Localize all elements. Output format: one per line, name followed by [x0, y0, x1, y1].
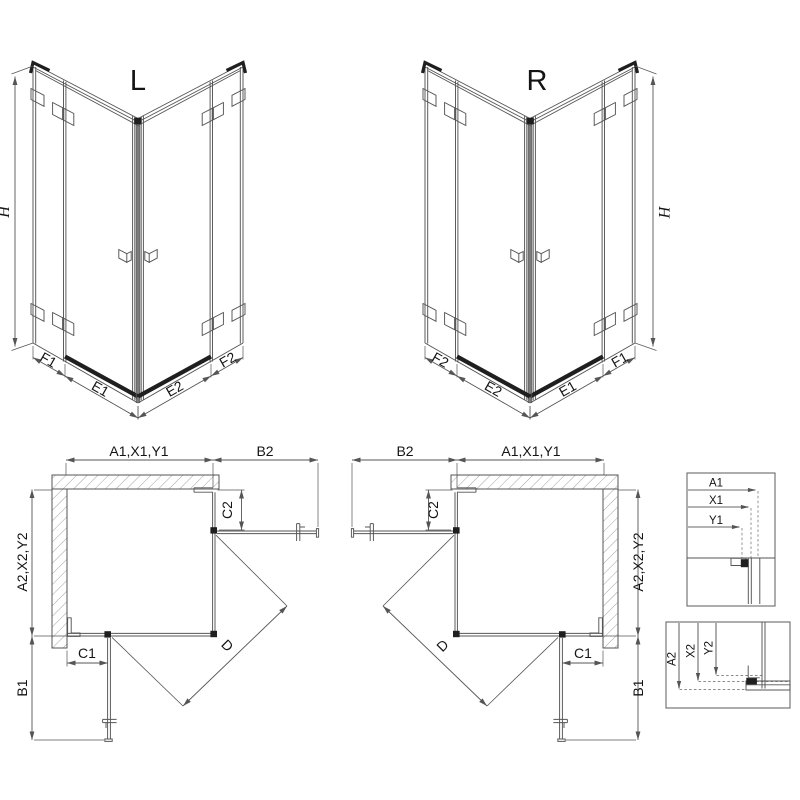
iso-view-right: R H F2 E2 E1 F1	[423, 63, 673, 420]
iso-right-dim-label-f2: F2	[429, 349, 451, 371]
iso-right-dim-label-f1: F1	[608, 349, 630, 371]
detail-height-label-x2: X2	[686, 644, 698, 658]
detail-height-measures: A2 X2 Y2	[666, 622, 790, 708]
iso-left-dim-label-f2: F2	[216, 349, 238, 371]
plan-left-dim-label-c1: C1	[78, 645, 96, 661]
detail-height-label-a2: A2	[667, 652, 679, 666]
detail-width-label-a1: A1	[709, 478, 723, 490]
plan-left-dim-label-c2: C2	[219, 501, 235, 519]
plan-view-right: B2 A1,X1,Y1 A2,X2,Y2 C2 C1 B1 D	[351, 443, 646, 741]
plan-left-dim-label-b1: B1	[14, 679, 30, 696]
plan-left-top-wall	[52, 475, 219, 489]
plan-left-side-wall	[52, 489, 67, 648]
plan-right-dim-label-b1: B1	[630, 679, 646, 696]
shower-enclosure-dimension-drawing: L H F1 E1 E2 F2 R H F2 E2 E1 F1 A1,X1,Y1…	[0, 0, 800, 800]
iso-right-version-label: R	[527, 65, 548, 97]
detail-width-label-y1: Y1	[709, 515, 723, 527]
plan-right-dim-label-d: D	[433, 636, 451, 654]
plan-right-side-wall	[603, 489, 618, 648]
plan-right-dim-label-a1x1y1: A1,X1,Y1	[501, 443, 560, 459]
plan-left-dim-label-d: D	[218, 636, 236, 654]
iso-left-version-label: L	[130, 65, 146, 97]
plan-view-left: A1,X1,Y1 B2 A2,X2,Y2 C2 C1 B1 D	[14, 443, 319, 741]
detail-width-measures: A1 X1 Y1	[687, 473, 775, 606]
plan-right-top-wall	[451, 475, 618, 489]
plan-left-dim-label-b2: B2	[256, 443, 273, 459]
detail-width-label-x1: X1	[709, 495, 723, 507]
plan-left-dim-label-a2x2y2: A2,X2,Y2	[14, 532, 30, 591]
iso-left-dim-label-h: H	[0, 205, 13, 219]
plan-right-dim-label-c2: C2	[425, 501, 441, 519]
iso-right-dim-label-h: H	[655, 205, 672, 219]
detail-height-label-y2: Y2	[704, 641, 716, 655]
plan-left-dim-label-a1x1y1: A1,X1,Y1	[109, 443, 168, 459]
iso-left-dim-label-f1: F1	[37, 349, 59, 371]
plan-right-dim-label-c1: C1	[574, 645, 592, 661]
plan-right-dim-label-b2: B2	[396, 443, 413, 459]
iso-view-left: L H F1 E1 E2 F2	[0, 63, 246, 420]
plan-right-dim-label-a2x2y2: A2,X2,Y2	[630, 532, 646, 591]
technical-drawing-canvas: L H F1 E1 E2 F2 R H F2 E2 E1 F1 A1,X1,Y1…	[0, 0, 800, 800]
